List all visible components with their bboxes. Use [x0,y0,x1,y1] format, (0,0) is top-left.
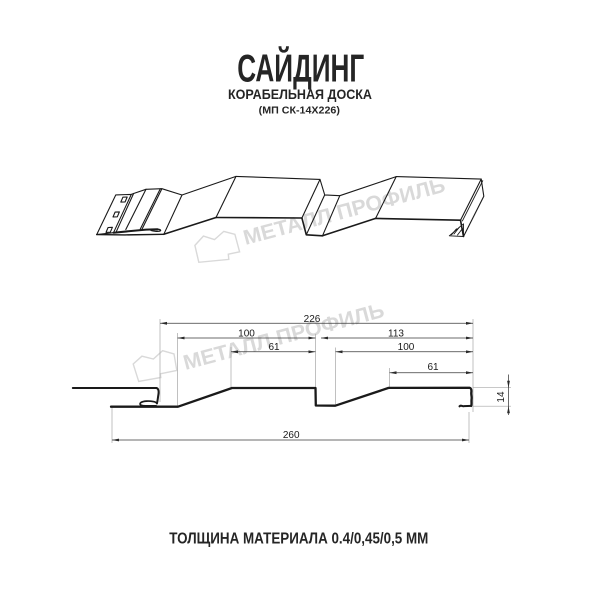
svg-text:113: 113 [388,328,404,339]
svg-text:МЕТАЛЛ ПРОФИЛЬ: МЕТАЛЛ ПРОФИЛЬ [181,299,387,375]
svg-text:100: 100 [238,328,255,339]
svg-text:14: 14 [496,391,507,403]
svg-text:61: 61 [268,342,280,353]
svg-text:(МП СК-14Х226): (МП СК-14Х226) [259,105,340,116]
svg-text:САЙДИНГ: САЙДИНГ [237,46,364,91]
svg-text:260: 260 [283,430,300,441]
svg-text:МЕТАЛЛ ПРОФИЛЬ: МЕТАЛЛ ПРОФИЛЬ [241,174,448,250]
svg-text:61: 61 [427,362,439,373]
svg-text:226: 226 [304,314,321,325]
svg-text:ТОЛЩИНА МАТЕРИАЛА 0.4/0,45/0,5: ТОЛЩИНА МАТЕРИАЛА 0.4/0,45/0,5 ММ [169,531,428,548]
svg-text:КОРАБЕЛЬНАЯ ДОСКА: КОРАБЕЛЬНАЯ ДОСКА [228,86,372,102]
svg-text:100: 100 [398,342,415,353]
